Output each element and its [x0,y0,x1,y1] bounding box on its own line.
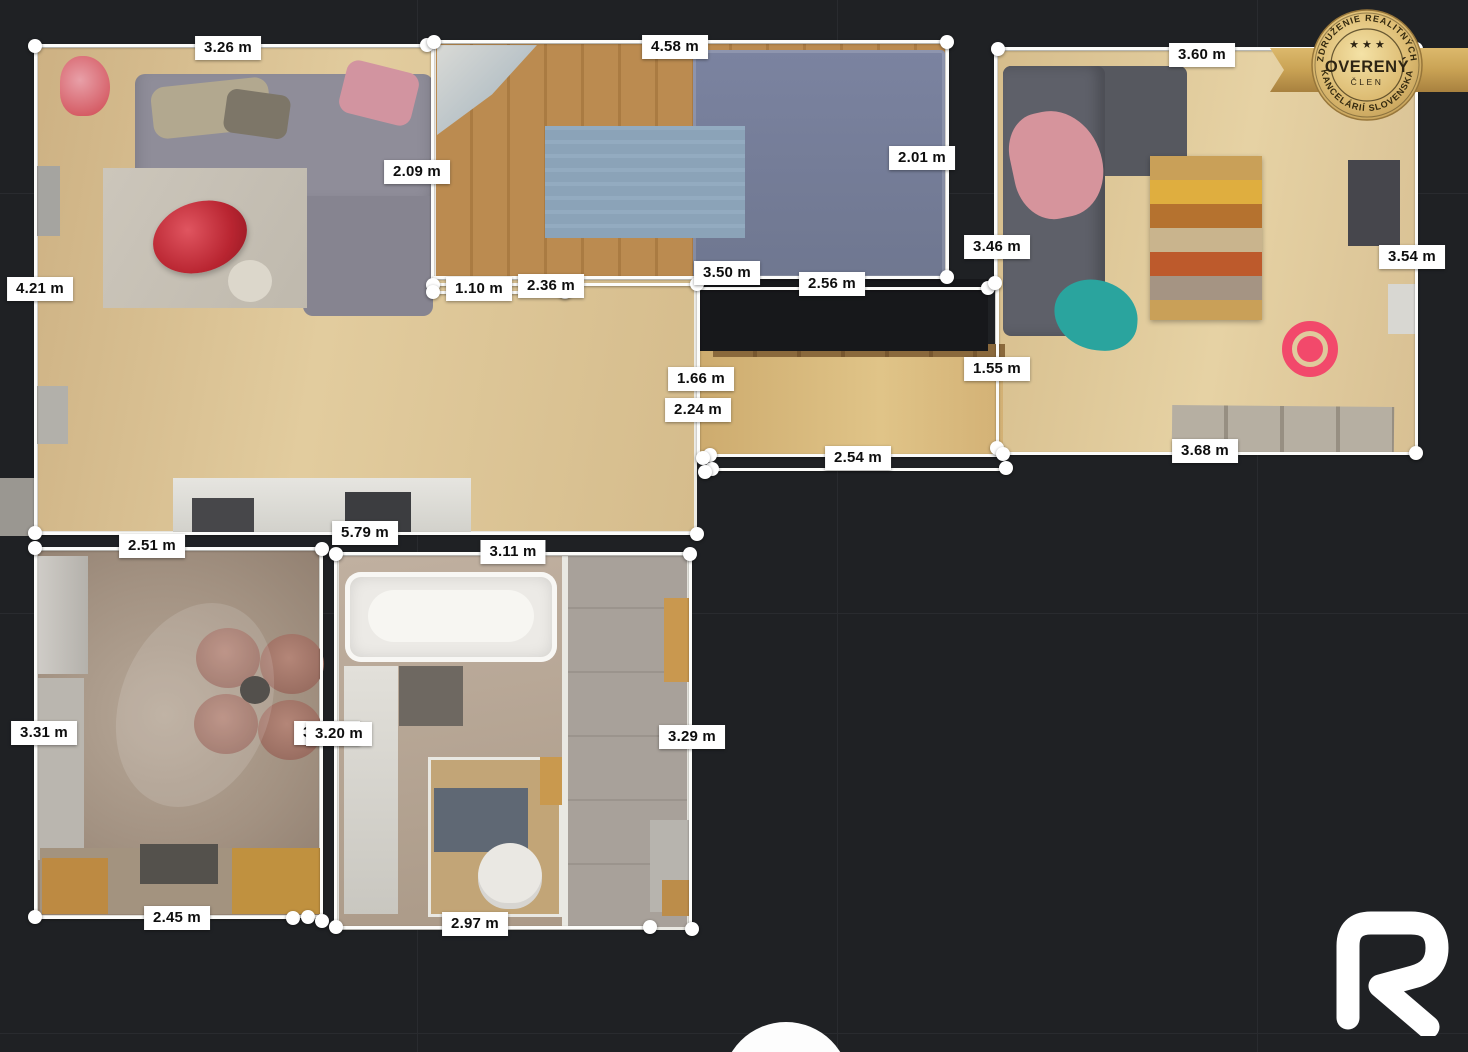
measurement-label: 2.24 m [665,398,731,422]
measurement-label: 3.29 m [659,725,725,749]
corridor-door [664,598,692,682]
corner-plant [60,56,110,116]
measurement-label: 2.54 m [825,446,891,470]
cooktop [192,498,254,534]
measurement-label: 3.26 m [195,36,261,60]
bath-mat [399,666,463,726]
measurement-endpoint-dot [329,920,343,934]
measurement-endpoint-dot [991,42,1005,56]
washing-machine-column [344,666,398,914]
measurement-endpoint-dot [643,920,657,934]
measurement-endpoint-dot [690,527,704,541]
measurement-label: 4.58 m [642,35,708,59]
measurement-endpoint-dot [286,911,300,925]
measurement-endpoint-dot [940,270,954,284]
bathtub-inner [368,590,534,642]
fridge [38,556,88,674]
radiator [36,166,60,236]
kitchen-cabinets [38,678,84,860]
measurement-label: 2.56 m [799,272,865,296]
measurement-endpoint-dot [940,35,954,49]
measurement-endpoint-dot [329,547,343,561]
r-brand-logo-icon [1318,896,1468,1036]
measurement-endpoint-dot [28,910,42,924]
badge-stars: ★ ★ ★ [1349,39,1385,51]
measurement-label: 3.60 m [1169,43,1235,67]
measurement-label: 3.31 m [11,721,77,745]
corridor-wood [662,880,690,916]
measurement-endpoint-dot [1409,446,1423,460]
measurement-endpoint-dot [685,922,699,936]
measurement-endpoint-dot [996,447,1010,461]
measurement-endpoint-dot [301,910,315,924]
dark-cabinet [1348,160,1400,246]
measurement-label: 2.01 m [889,146,955,170]
measurement-label: 2.09 m [384,160,450,184]
measurement-endpoint-dot [315,914,329,928]
measurement-endpoint-dot [427,35,441,49]
toilet [478,843,542,909]
white-shelf [1388,284,1418,334]
measurement-label: 2.45 m [144,906,210,930]
kitchen-sink [140,844,218,884]
bedroom-rug [545,126,745,238]
measurement-endpoint-dot [683,547,697,561]
measurement-endpoint-dot [426,285,440,299]
measurement-endpoint-dot [988,276,1002,290]
measurement-endpoint-dot [696,451,710,465]
measurement-label: 4.21 m [7,277,73,301]
measurement-label: 3.11 m [480,540,545,564]
measurement-label: 3.20 m [306,722,372,746]
measurement-label: 3.50 m [694,261,760,285]
measurement-endpoint-dot [999,461,1013,475]
measurement-label: 2.51 m [119,534,185,558]
measurement-endpoint-dot [28,541,42,555]
badge-title: OVERENÝ [1325,57,1409,76]
hallway-floor [697,350,1003,456]
floorplan-canvas[interactable]: 3.26 m4.58 m3.60 m4.21 m2.09 m2.01 m3.46… [0,0,1468,1052]
wc-shelf [540,757,562,805]
measurement-label: 1.66 m [668,367,734,391]
measurement-endpoint-dot [315,542,329,556]
sofa-chaise [303,196,433,316]
measurement-label: 3.68 m [1172,439,1238,463]
badge-member-text: ČLEN [1351,77,1384,87]
measurement-endpoint-dot [28,526,42,540]
measurement-endpoint-dot [698,465,712,479]
white-bowl [228,260,272,302]
striped-wardrobe [1150,156,1262,320]
camera-target-marker-dot[interactable] [1297,336,1323,362]
measurement-label: 3.54 m [1379,245,1445,269]
measurement-label: 2.36 m [518,274,584,298]
measurement-label: 3.46 m [964,235,1030,259]
measurement-label: 1.10 m [446,277,512,301]
measurement-label: 2.97 m [442,912,508,936]
radiator [36,386,68,444]
measurement-endpoint-dot [28,39,42,53]
verified-badge-icon: ZDRUŽENIE REALITNÝCH ★ ★ ★ OVERENÝ ČLEN … [1262,0,1468,140]
counter-wood [232,848,320,914]
counter-wood [42,858,108,914]
measurement-label: 5.79 m [332,521,398,545]
measurement-label: 1.55 m [964,357,1030,381]
sofa-pillow-dark [222,88,292,140]
bottom-round-control[interactable] [722,1022,850,1052]
